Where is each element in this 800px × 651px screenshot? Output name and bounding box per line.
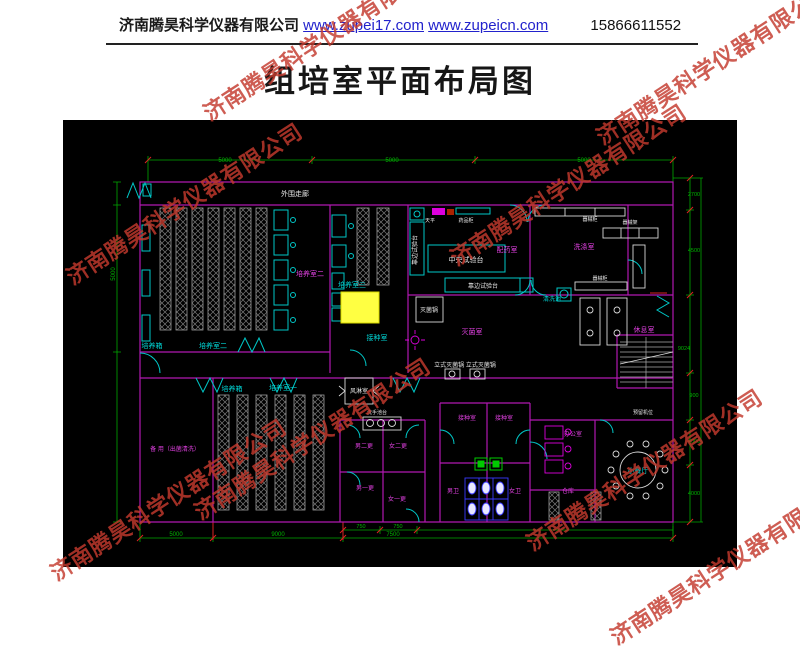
company-name: 济南腾昊科学仪器有限公司 [119,17,299,34]
room-label: 女一更 [388,495,406,503]
link-zupeicn[interactable]: www.zupeicn.com [428,17,548,34]
dimension-label: 5000 [169,532,183,538]
dimension-label: 5000 [218,158,232,164]
room-label: 培养室一 [269,383,297,392]
dimension-label: 5000 [385,158,399,164]
room-label: 办公室 [564,430,582,438]
culture-racks [160,208,601,520]
bench-equipment [432,208,454,215]
room-label: 洗涤室 [574,242,595,251]
dimension-label: 4000 [688,491,700,497]
room-label: 男一更 [356,485,374,492]
dimension-label: 5000 [111,267,117,281]
dimension-label: 2700 [688,192,700,198]
room-label: 灭菌室 [462,327,483,336]
link-zupei17[interactable]: www.zupei17.com [303,17,424,34]
dimension-label: 4500 [688,248,700,254]
toilet-fixtures [465,478,508,520]
room-label: 靠边试验台 [411,235,419,265]
yellow-highlight [341,292,379,323]
room-label: 男二更 [355,443,373,450]
room-label: 灭菌锅 [420,306,438,314]
room-label: 女二更 [389,442,407,450]
room-label: 女卫 [509,487,521,495]
dimension-label: 9000 [271,532,285,538]
room-label: 培养室二 [296,269,324,278]
room-label: 男卫 [447,488,459,495]
office-desks [405,330,571,473]
room-label: 器械架 [622,219,637,226]
room-label: 接种室 [367,333,388,342]
room-label: 清洗池 [543,295,561,303]
room-label: 配药室 [497,245,518,254]
room-label: 接种室 [458,414,476,422]
floor-plan: 培养箱培养室二培养箱培养室一培养室三接种室清洗池小餐厅外围走廊中央试验台靠边试验… [63,120,737,567]
room-label: 培养箱 [142,341,163,350]
page-header: 济南腾昊科学仪器有限公司 www.zupei17.com www.zupeicn… [0,14,800,35]
header-divider [106,43,698,45]
room-label: 预留机位 [633,409,653,416]
room-label: 小餐厅 [628,466,649,475]
page-title: 组培室平面布局图 [0,56,800,101]
room-label: 接种室 [495,414,513,422]
room-label: 中央试验台 [449,255,484,264]
room-label: 仓库 [562,487,574,495]
room-label: 器械柜 [582,216,597,223]
room-label: 靠边试验台 [468,282,498,290]
dimension-label: 9024 [678,346,690,352]
room-label: 天平 [425,218,435,224]
room-label: 培养室二 [199,341,227,350]
toilet-stalls [475,458,502,470]
dimension-label: 7500 [386,532,400,538]
stairs [620,337,673,388]
room-label: 休息室 [634,325,655,334]
phone-number: 15866611552 [590,17,681,34]
room-label: 洗手池台 [367,409,387,416]
dimension-label: 750 [356,524,365,530]
floor-plan-svg: 培养箱培养室二培养箱培养室一培养室三接种室清洗池小餐厅外围走廊中央试验台靠边试验… [63,120,737,567]
dimension-label: 900 [689,393,698,399]
room-label: 风淋室 [350,387,368,395]
room-label: 外围走廊 [281,189,309,198]
room-label: 药品柜 [458,217,473,224]
room-label: 培养室三 [338,280,366,289]
room-label: 培养箱 [222,384,243,393]
dimension-label: 750 [393,524,402,530]
room-label: 器械柜 [592,275,607,282]
room-label: 备 用（出菌清洗） [150,445,200,453]
room-label: 立式灭菌锅 立式灭菌锅 [434,361,496,369]
dimension-label: 5000 [577,158,591,164]
dimension-label: 4000 [688,439,700,445]
